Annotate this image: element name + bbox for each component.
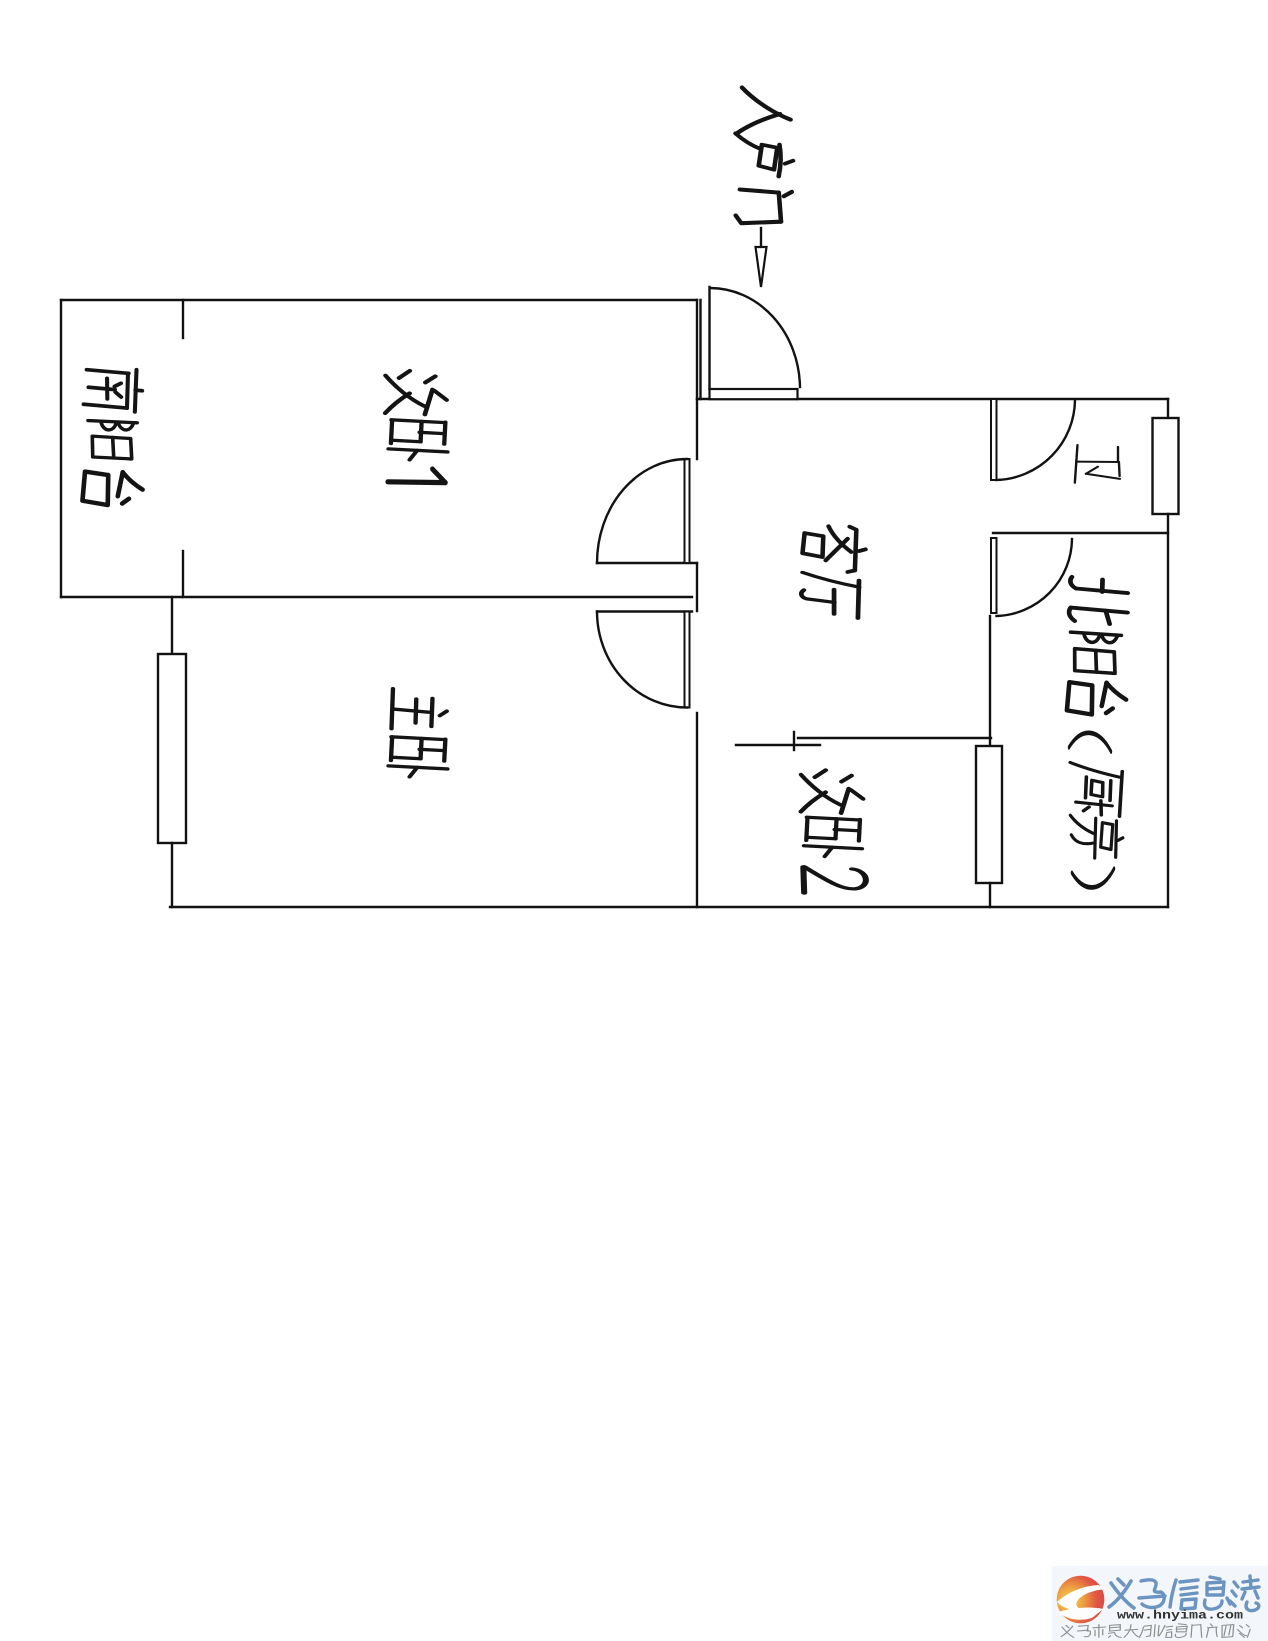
svg-text:www.hnyima.com: www.hnyima.com [1117,1609,1243,1623]
